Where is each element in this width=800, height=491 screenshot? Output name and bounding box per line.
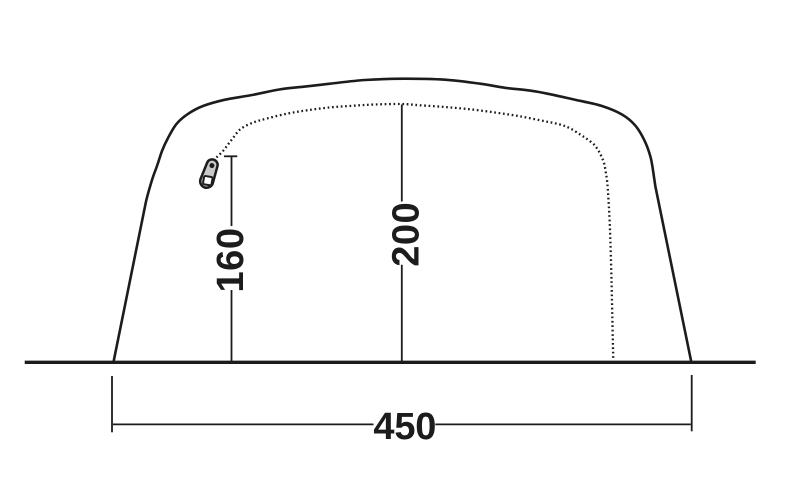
svg-text:450: 450 <box>373 406 436 448</box>
svg-text:200: 200 <box>385 202 427 267</box>
svg-text:160: 160 <box>210 228 252 293</box>
